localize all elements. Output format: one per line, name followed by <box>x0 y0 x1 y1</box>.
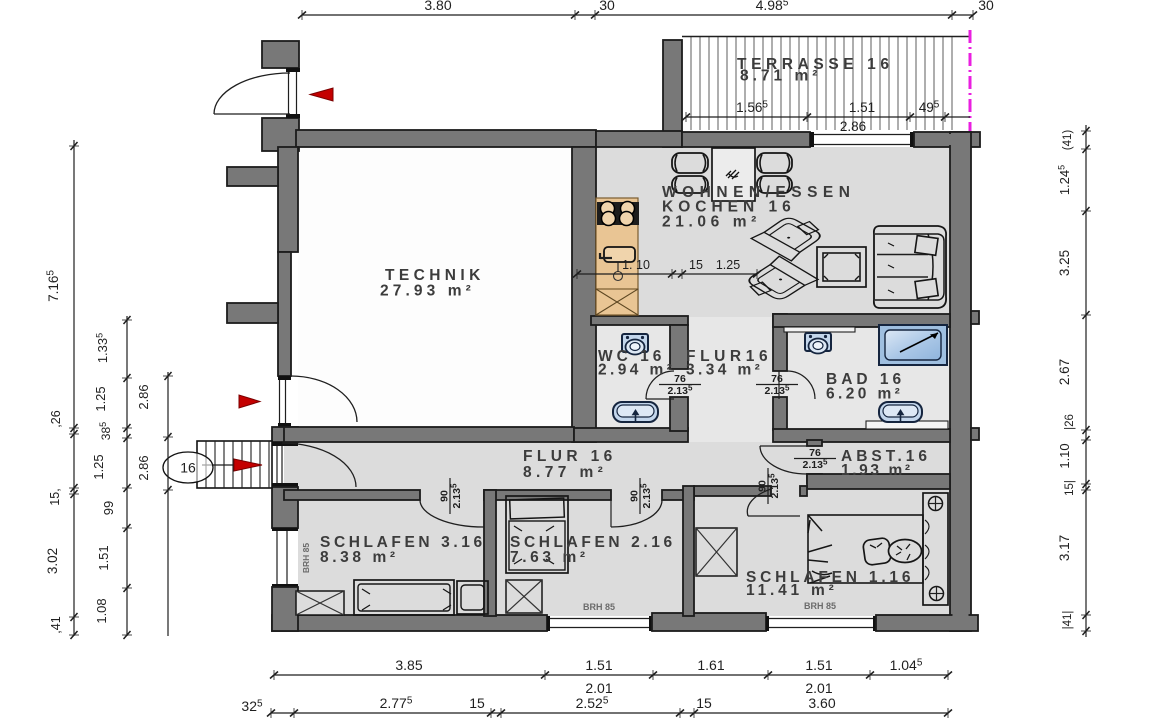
svg-text:90: 90 <box>629 490 641 502</box>
svg-text:76: 76 <box>809 447 821 459</box>
svg-text:6.20 m²: 6.20 m² <box>826 386 903 403</box>
svg-text:1.10: 1.10 <box>1057 443 1072 468</box>
svg-text:2.86: 2.86 <box>136 455 151 480</box>
svg-text:3.60: 3.60 <box>808 695 835 711</box>
svg-text:8.77 m²: 8.77 m² <box>523 464 607 481</box>
svg-text:1.08: 1.08 <box>94 598 109 623</box>
svg-text:76: 76 <box>674 373 686 385</box>
svg-text:2.01: 2.01 <box>805 680 832 696</box>
svg-text:15|: 15| <box>1064 480 1076 496</box>
svg-text:BRH 85: BRH 85 <box>804 601 836 611</box>
svg-text:1.93 m²: 1.93 m² <box>841 462 913 479</box>
svg-text:2.67: 2.67 <box>1057 359 1072 385</box>
svg-text:FLUR 16: FLUR 16 <box>523 448 617 465</box>
svg-text:3.34 m²: 3.34 m² <box>686 362 763 379</box>
svg-text:30: 30 <box>599 0 615 13</box>
svg-text:15,: 15, <box>48 488 62 505</box>
svg-text:15: 15 <box>689 258 703 272</box>
svg-text:16: 16 <box>180 460 196 476</box>
svg-text:1.51: 1.51 <box>96 545 111 570</box>
svg-text:76: 76 <box>771 373 783 385</box>
svg-text:BRH 85: BRH 85 <box>301 543 311 574</box>
svg-text:2.94 m²: 2.94 m² <box>598 362 675 379</box>
svg-text:2.01: 2.01 <box>585 680 612 696</box>
svg-text:1. 10: 1. 10 <box>622 258 650 272</box>
svg-text:1.51: 1.51 <box>849 100 875 115</box>
svg-text:,41: ,41 <box>49 616 63 633</box>
svg-text:90: 90 <box>757 480 769 492</box>
svg-text:1.51: 1.51 <box>585 657 612 673</box>
svg-text:8.38 m²: 8.38 m² <box>320 549 399 566</box>
svg-text:2.86: 2.86 <box>136 384 151 409</box>
svg-text:21.06 m²: 21.06 m² <box>662 214 761 231</box>
svg-text:2.86: 2.86 <box>840 119 866 134</box>
svg-text:99: 99 <box>101 501 116 515</box>
svg-text:3.85: 3.85 <box>395 657 422 673</box>
svg-text:3.02: 3.02 <box>45 548 60 574</box>
svg-text:15: 15 <box>469 695 485 711</box>
svg-text:11.41 m²: 11.41 m² <box>746 582 838 599</box>
svg-text:15: 15 <box>696 695 712 711</box>
svg-text:27.93 m²: 27.93 m² <box>380 283 475 300</box>
svg-text:3.80: 3.80 <box>424 0 451 13</box>
svg-text:3.25: 3.25 <box>1057 250 1072 276</box>
svg-text:|26: |26 <box>1064 414 1076 430</box>
svg-text:3.17: 3.17 <box>1057 535 1072 561</box>
svg-text:1.51: 1.51 <box>805 657 832 673</box>
svg-text:8.71 m²: 8.71 m² <box>740 68 821 85</box>
svg-text:,26: ,26 <box>49 410 63 427</box>
svg-text:7.63 m²: 7.63 m² <box>510 549 589 566</box>
svg-text:1.25: 1.25 <box>716 258 740 272</box>
svg-text:1.25: 1.25 <box>91 454 106 479</box>
svg-text:(41): (41) <box>1062 130 1074 151</box>
svg-text:BRH 85: BRH 85 <box>583 602 615 612</box>
svg-text:30: 30 <box>978 0 994 13</box>
svg-text:1.61: 1.61 <box>697 657 724 673</box>
svg-text:90: 90 <box>439 490 451 502</box>
svg-text:TECHNIK: TECHNIK <box>385 267 485 284</box>
svg-text:1.25: 1.25 <box>93 386 108 411</box>
svg-text:|41|: |41| <box>1062 611 1074 630</box>
